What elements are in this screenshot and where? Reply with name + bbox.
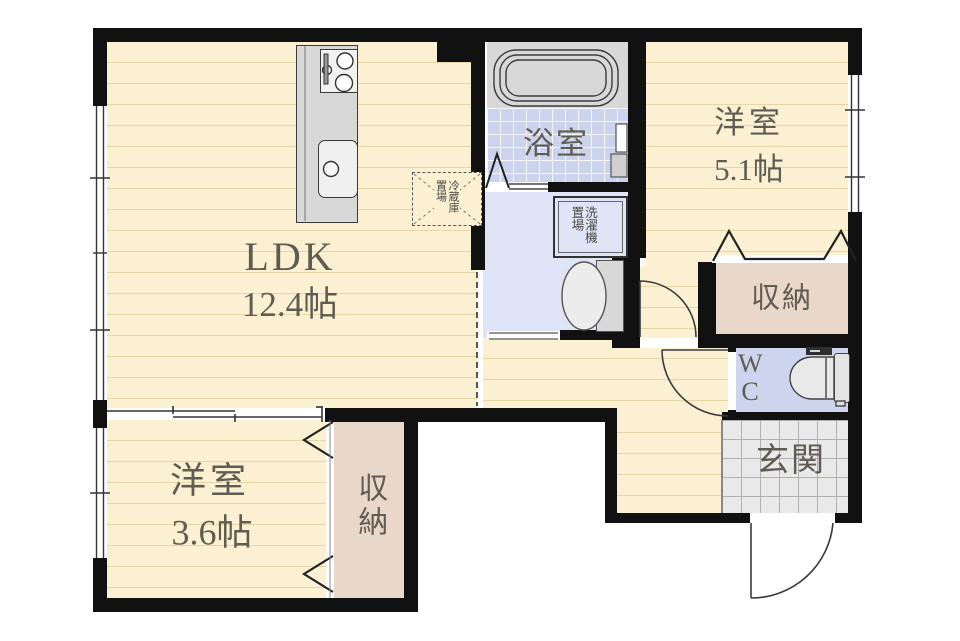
hallway-upper-floor	[483, 338, 728, 412]
wall-wc-top	[698, 334, 862, 348]
storage-lower-door-strip	[326, 420, 334, 598]
wall-bath-bedroom	[628, 42, 646, 258]
wall-bath-bottom	[548, 182, 628, 192]
bedroom-upper-alcove-floor	[640, 266, 698, 338]
wall-left-upper	[93, 28, 107, 106]
wc-door-opening	[728, 352, 736, 410]
kitchen-sink	[318, 140, 358, 198]
label-bathroom: 浴室	[523, 126, 589, 162]
label-bedroom-upper-size: 5.1帖	[714, 152, 784, 188]
wall-bottom-left	[93, 598, 418, 612]
wall-wc-bottom	[722, 412, 862, 420]
window-left-ldk-backing	[848, 75, 862, 212]
entrance-door	[751, 523, 833, 598]
sliding-partition-strip	[107, 408, 326, 420]
label-washer-space: 洗濯機置場	[569, 206, 596, 248]
toilet-tank	[834, 353, 850, 403]
bathroom-door-strip	[483, 182, 548, 192]
wall-left-mid	[93, 400, 107, 428]
label-wc-line2: C	[738, 378, 762, 406]
label-storage-upper: 収納	[751, 282, 813, 315]
stove	[320, 49, 358, 93]
label-wc-line1: W	[738, 350, 762, 378]
label-storage-lower: 収納	[352, 472, 387, 540]
label-bedroom-lower: 洋室	[170, 460, 250, 501]
label-entrance: 玄関	[756, 443, 826, 481]
room-bedroom-lower-floor	[107, 420, 326, 598]
floor-plan: LDK 12.4帖 洋室 5.1帖 洋室 3.6帖 浴室 収納 収納 W C 玄…	[0, 0, 960, 641]
label-fridge-space: 冷蔵庫置場	[434, 180, 459, 218]
label-bedroom-upper: 洋室	[714, 105, 784, 141]
washbasin-vanity	[596, 260, 624, 332]
hallway-lower-floor	[617, 412, 722, 513]
label-ldk: LDK	[244, 234, 335, 280]
wall-ldk-bath	[471, 42, 485, 270]
washroom-doorway-strip	[487, 331, 560, 340]
label-wc: W C	[738, 350, 762, 406]
wall-hall-west	[605, 422, 617, 513]
bedroom-upper-door-threshold	[640, 338, 698, 348]
storage-upper-door-strip	[712, 255, 848, 263]
entrance-door-opening	[750, 513, 835, 523]
label-bedroom-lower-size: 3.6帖	[171, 512, 252, 553]
wall-ldk-bottom	[325, 408, 617, 422]
wall-storage-lower-right	[404, 408, 418, 612]
label-ldk-size: 12.4帖	[242, 285, 338, 325]
